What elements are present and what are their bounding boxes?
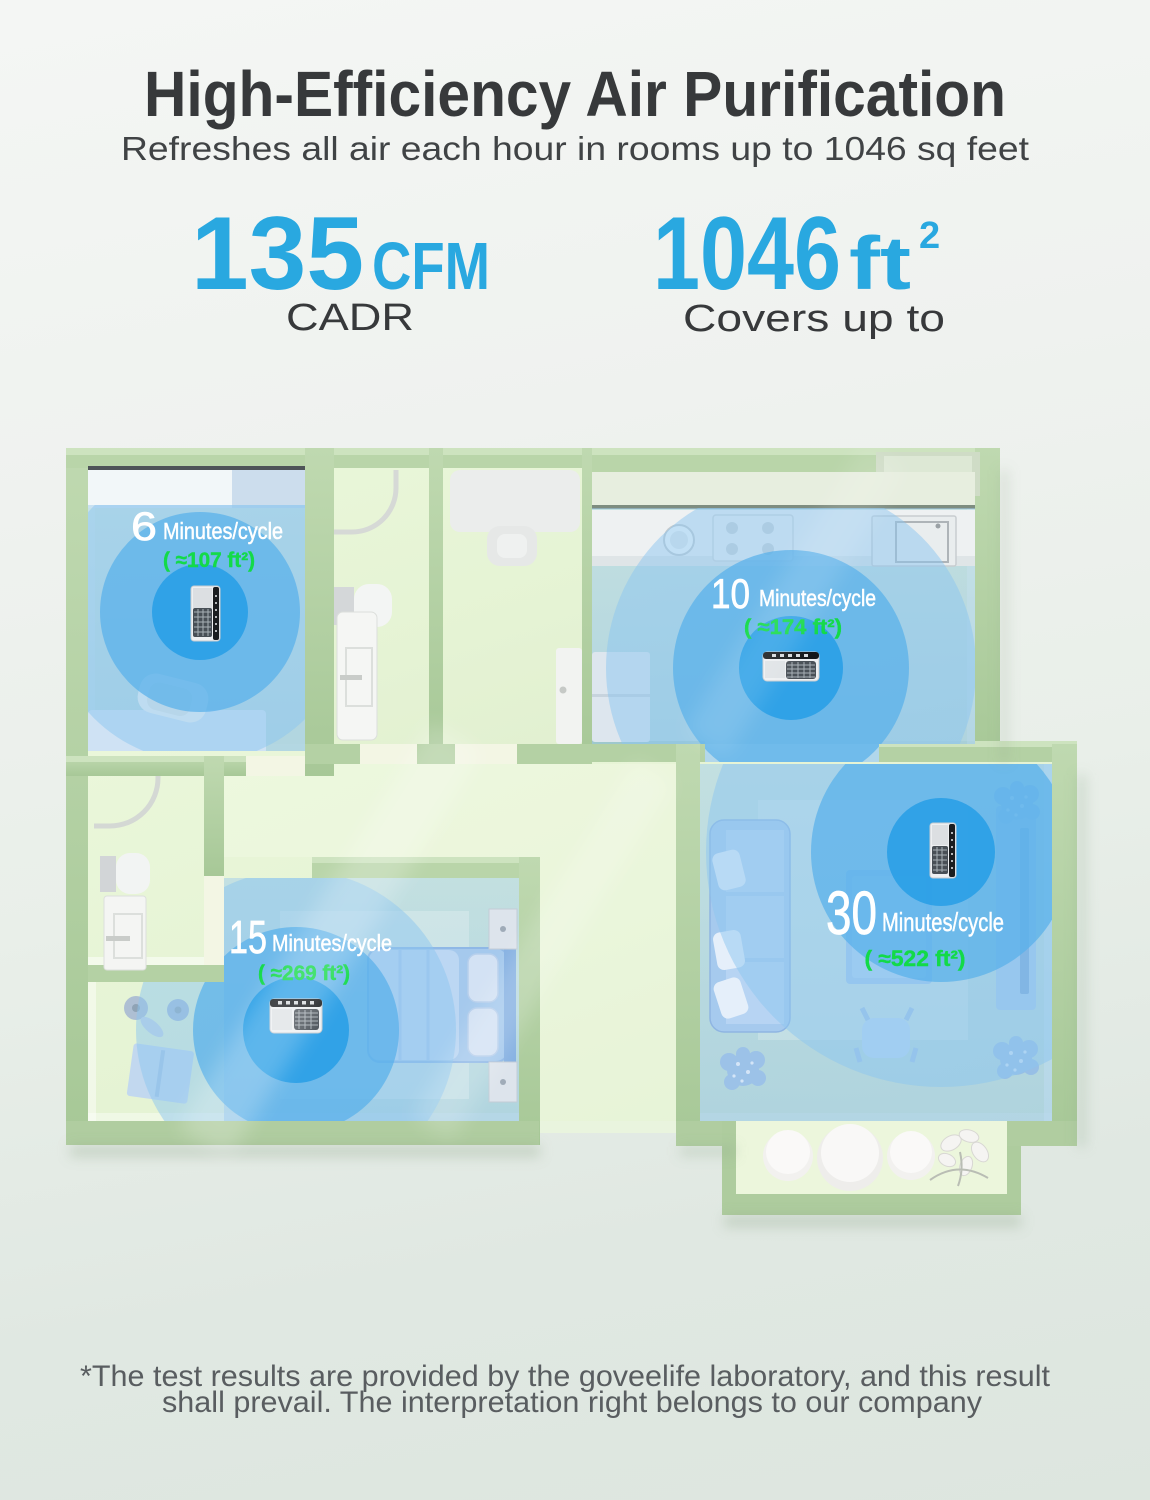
svg-text:CFM: CFM — [372, 229, 490, 304]
svg-text:ft: ft — [849, 221, 911, 305]
svg-text:10: 10 — [711, 570, 750, 617]
svg-text:CADR: CADR — [286, 297, 414, 339]
svg-text:15: 15 — [229, 911, 267, 963]
svg-text:shall prevail. The interpretat: shall prevail. The interpretation right … — [162, 1386, 982, 1419]
svg-text:6: 6 — [131, 505, 157, 549]
svg-text:Refreshes all air each hour in: Refreshes all air each hour in rooms up … — [121, 130, 1029, 167]
svg-text:Minutes/cycle: Minutes/cycle — [163, 518, 283, 544]
svg-text:( ≈522 ft²): ( ≈522 ft²) — [865, 946, 966, 971]
svg-text:( ≈107 ft²): ( ≈107 ft²) — [163, 549, 255, 572]
svg-text:135: 135 — [191, 196, 364, 312]
svg-text:30: 30 — [826, 879, 877, 947]
svg-text:Minutes/cycle: Minutes/cycle — [882, 907, 1004, 937]
svg-text:1046: 1046 — [653, 196, 841, 312]
svg-text:2: 2 — [919, 215, 940, 257]
svg-text:Covers up to: Covers up to — [683, 298, 945, 340]
svg-text:High-Efficiency Air Purificati: High-Efficiency Air Purification — [144, 58, 1006, 130]
